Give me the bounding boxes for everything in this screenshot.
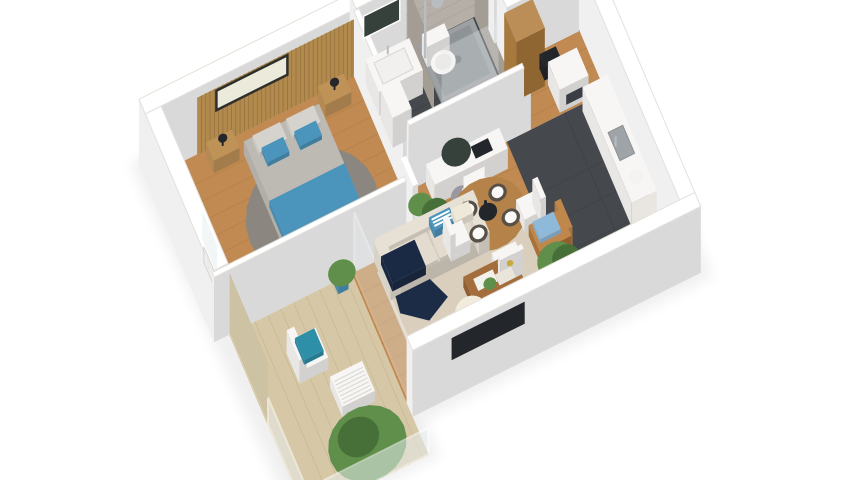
apartment-3d-floorplan xyxy=(0,0,850,480)
floorplan-render-canvas xyxy=(0,0,850,480)
